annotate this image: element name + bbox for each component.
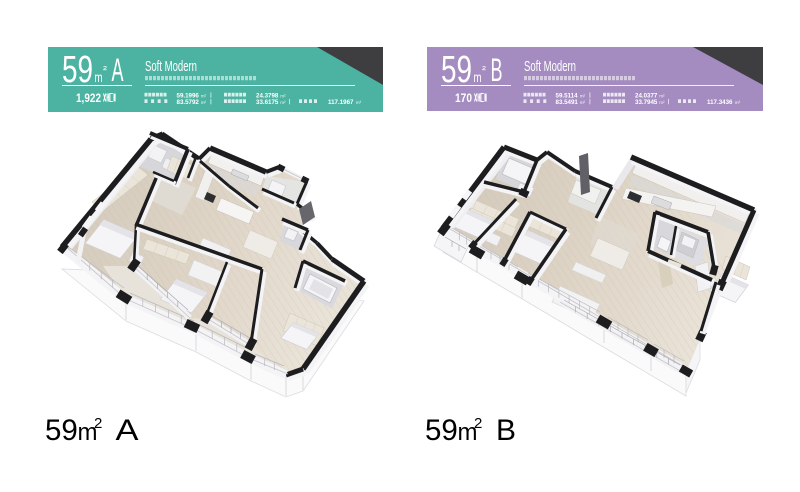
svg-text:2: 2 — [94, 415, 102, 432]
svg-text:m²: m² — [201, 93, 207, 98]
svg-text:m²: m² — [580, 93, 586, 98]
svg-text:m²: m² — [356, 100, 362, 105]
svg-text:m²: m² — [280, 93, 286, 98]
svg-text:m: m — [95, 69, 103, 85]
svg-text:1,922: 1,922 — [76, 91, 101, 105]
svg-text:²: ² — [482, 65, 486, 76]
svg-text:83.5792: 83.5792 — [177, 99, 200, 106]
svg-text:m²: m² — [735, 100, 741, 105]
svg-text:33.7945: 33.7945 — [635, 99, 658, 106]
svg-text:59: 59 — [441, 49, 472, 91]
svg-text:2: 2 — [474, 415, 482, 432]
svg-text:B: B — [491, 52, 503, 88]
svg-text:Soft Modern: Soft Modern — [524, 58, 576, 75]
svg-text:m²: m² — [280, 100, 286, 105]
svg-text:m²: m² — [201, 100, 207, 105]
svg-text:Soft Modern: Soft Modern — [145, 58, 197, 75]
svg-text:59: 59 — [425, 414, 458, 447]
svg-text:m²: m² — [659, 93, 665, 98]
svg-text:²: ² — [103, 65, 107, 76]
svg-text:m²: m² — [659, 100, 665, 105]
svg-text:170: 170 — [455, 91, 472, 105]
svg-text:59: 59 — [62, 49, 93, 91]
svg-text:B: B — [496, 414, 516, 447]
svg-text:117.1967: 117.1967 — [328, 99, 354, 106]
svg-text:117.3436: 117.3436 — [707, 99, 733, 106]
svg-text:83.5491: 83.5491 — [556, 99, 579, 106]
svg-text:m²: m² — [580, 100, 586, 105]
svg-text:A: A — [116, 414, 139, 447]
svg-text:59: 59 — [45, 414, 78, 447]
svg-text:m: m — [474, 69, 482, 85]
svg-text:A: A — [112, 52, 124, 88]
svg-text:33.6175: 33.6175 — [256, 99, 279, 106]
